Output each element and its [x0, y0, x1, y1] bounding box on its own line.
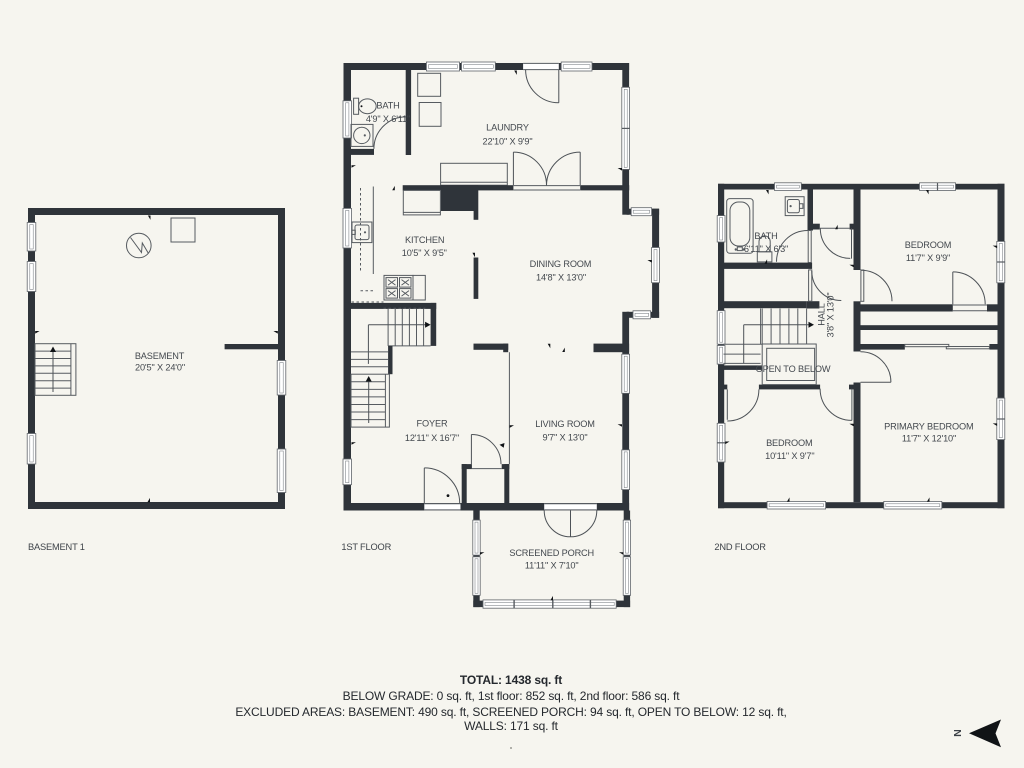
svg-text:KITCHEN: KITCHEN — [405, 235, 444, 245]
svg-text:BELOW GRADE: 0 sq. ft, 1st flo: BELOW GRADE: 0 sq. ft, 1st floor: 852 sq… — [343, 689, 681, 703]
svg-text:10'11" X 9'7": 10'11" X 9'7" — [765, 451, 814, 461]
svg-text:LIVING ROOM: LIVING ROOM — [535, 419, 595, 429]
svg-text:LAUNDRY: LAUNDRY — [486, 123, 529, 133]
svg-text:BATH: BATH — [376, 101, 399, 111]
svg-text:EXCLUDED AREAS: BASEMENT: 490: EXCLUDED AREAS: BASEMENT: 490 sq. ft, SC… — [235, 705, 786, 719]
svg-text:4'9" X 6'11": 4'9" X 6'11" — [366, 114, 410, 124]
svg-text:N: N — [951, 729, 963, 737]
svg-text:BASEMENT: BASEMENT — [135, 351, 185, 361]
svg-text:2ND FLOOR: 2ND FLOOR — [714, 542, 766, 552]
svg-text:22'10" X 9'9": 22'10" X 9'9" — [483, 137, 533, 147]
svg-text:PRIMARY BEDROOM: PRIMARY BEDROOM — [884, 422, 973, 432]
svg-text:11'7" X 9'9": 11'7" X 9'9" — [906, 253, 950, 263]
svg-text:11'7" X 12'10": 11'7" X 12'10" — [902, 434, 956, 444]
svg-text:BEDROOM: BEDROOM — [766, 438, 812, 448]
svg-text:FOYER: FOYER — [417, 419, 448, 429]
svg-text:1ST FLOOR: 1ST FLOOR — [341, 542, 391, 552]
svg-text:11'11" X 7'10": 11'11" X 7'10" — [525, 561, 579, 571]
svg-text:BASEMENT 1: BASEMENT 1 — [28, 542, 85, 552]
svg-text:20'5" X 24'0": 20'5" X 24'0" — [135, 363, 185, 373]
svg-text:SCREENED PORCH: SCREENED PORCH — [509, 548, 594, 558]
svg-text:DINING ROOM: DINING ROOM — [530, 259, 592, 269]
svg-text:10'5" X 9'5": 10'5" X 9'5" — [402, 248, 447, 258]
svg-text:OPEN TO BELOW: OPEN TO BELOW — [756, 364, 831, 374]
svg-text:12'11" X 16'7": 12'11" X 16'7" — [405, 433, 459, 443]
svg-text:14'8" X 13'0": 14'8" X 13'0" — [536, 273, 586, 283]
svg-text:6'11" X 6'3": 6'11" X 6'3" — [744, 244, 788, 254]
svg-text:3'8" X 13'0": 3'8" X 13'0" — [826, 292, 836, 337]
svg-text:TOTAL: 1438 sq. ft: TOTAL: 1438 sq. ft — [460, 673, 562, 687]
svg-text:BATH: BATH — [754, 231, 777, 241]
svg-text:BEDROOM: BEDROOM — [905, 240, 951, 250]
svg-text:WALLS: 171 sq. ft: WALLS: 171 sq. ft — [464, 719, 559, 733]
svg-text:9'7" X 13'0": 9'7" X 13'0" — [542, 433, 587, 443]
